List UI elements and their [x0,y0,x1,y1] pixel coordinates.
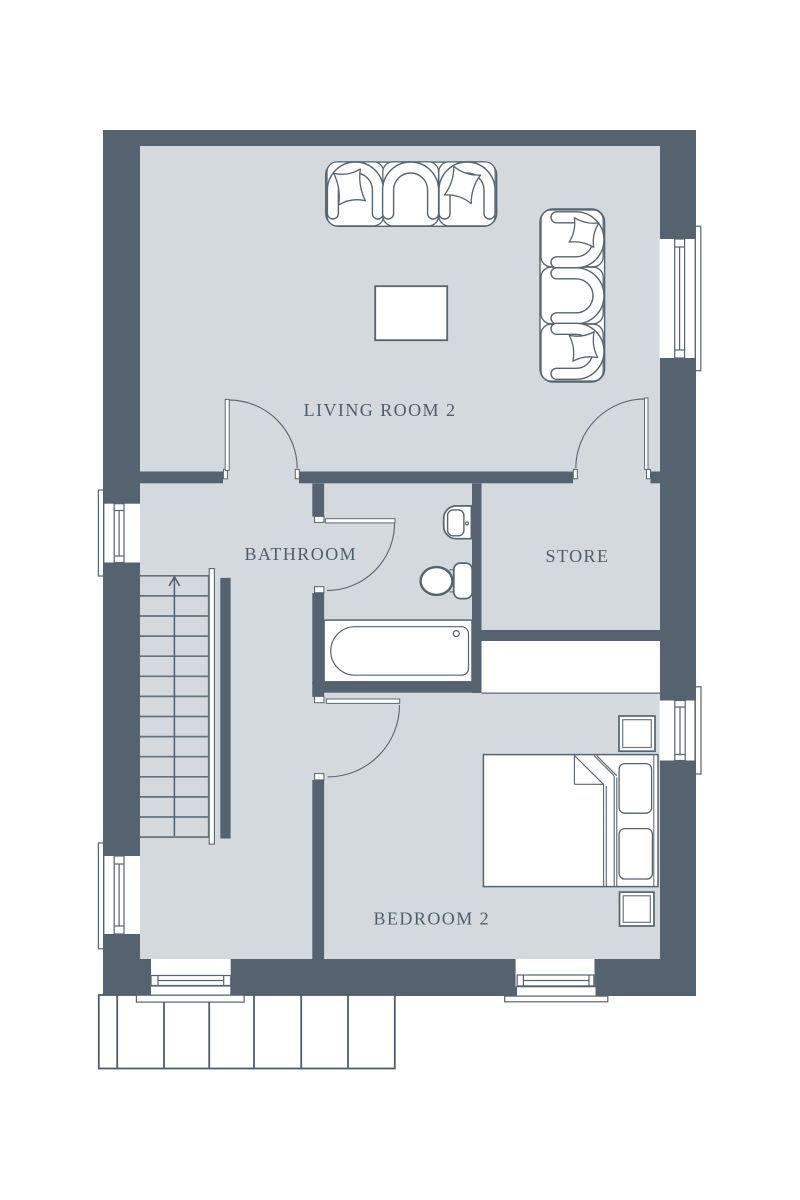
svg-text:BATHROOM: BATHROOM [244,544,357,564]
svg-text:BEDROOM 2: BEDROOM 2 [374,909,491,929]
svg-text:STORE: STORE [546,546,610,566]
svg-text:LIVING ROOM 2: LIVING ROOM 2 [304,400,457,420]
